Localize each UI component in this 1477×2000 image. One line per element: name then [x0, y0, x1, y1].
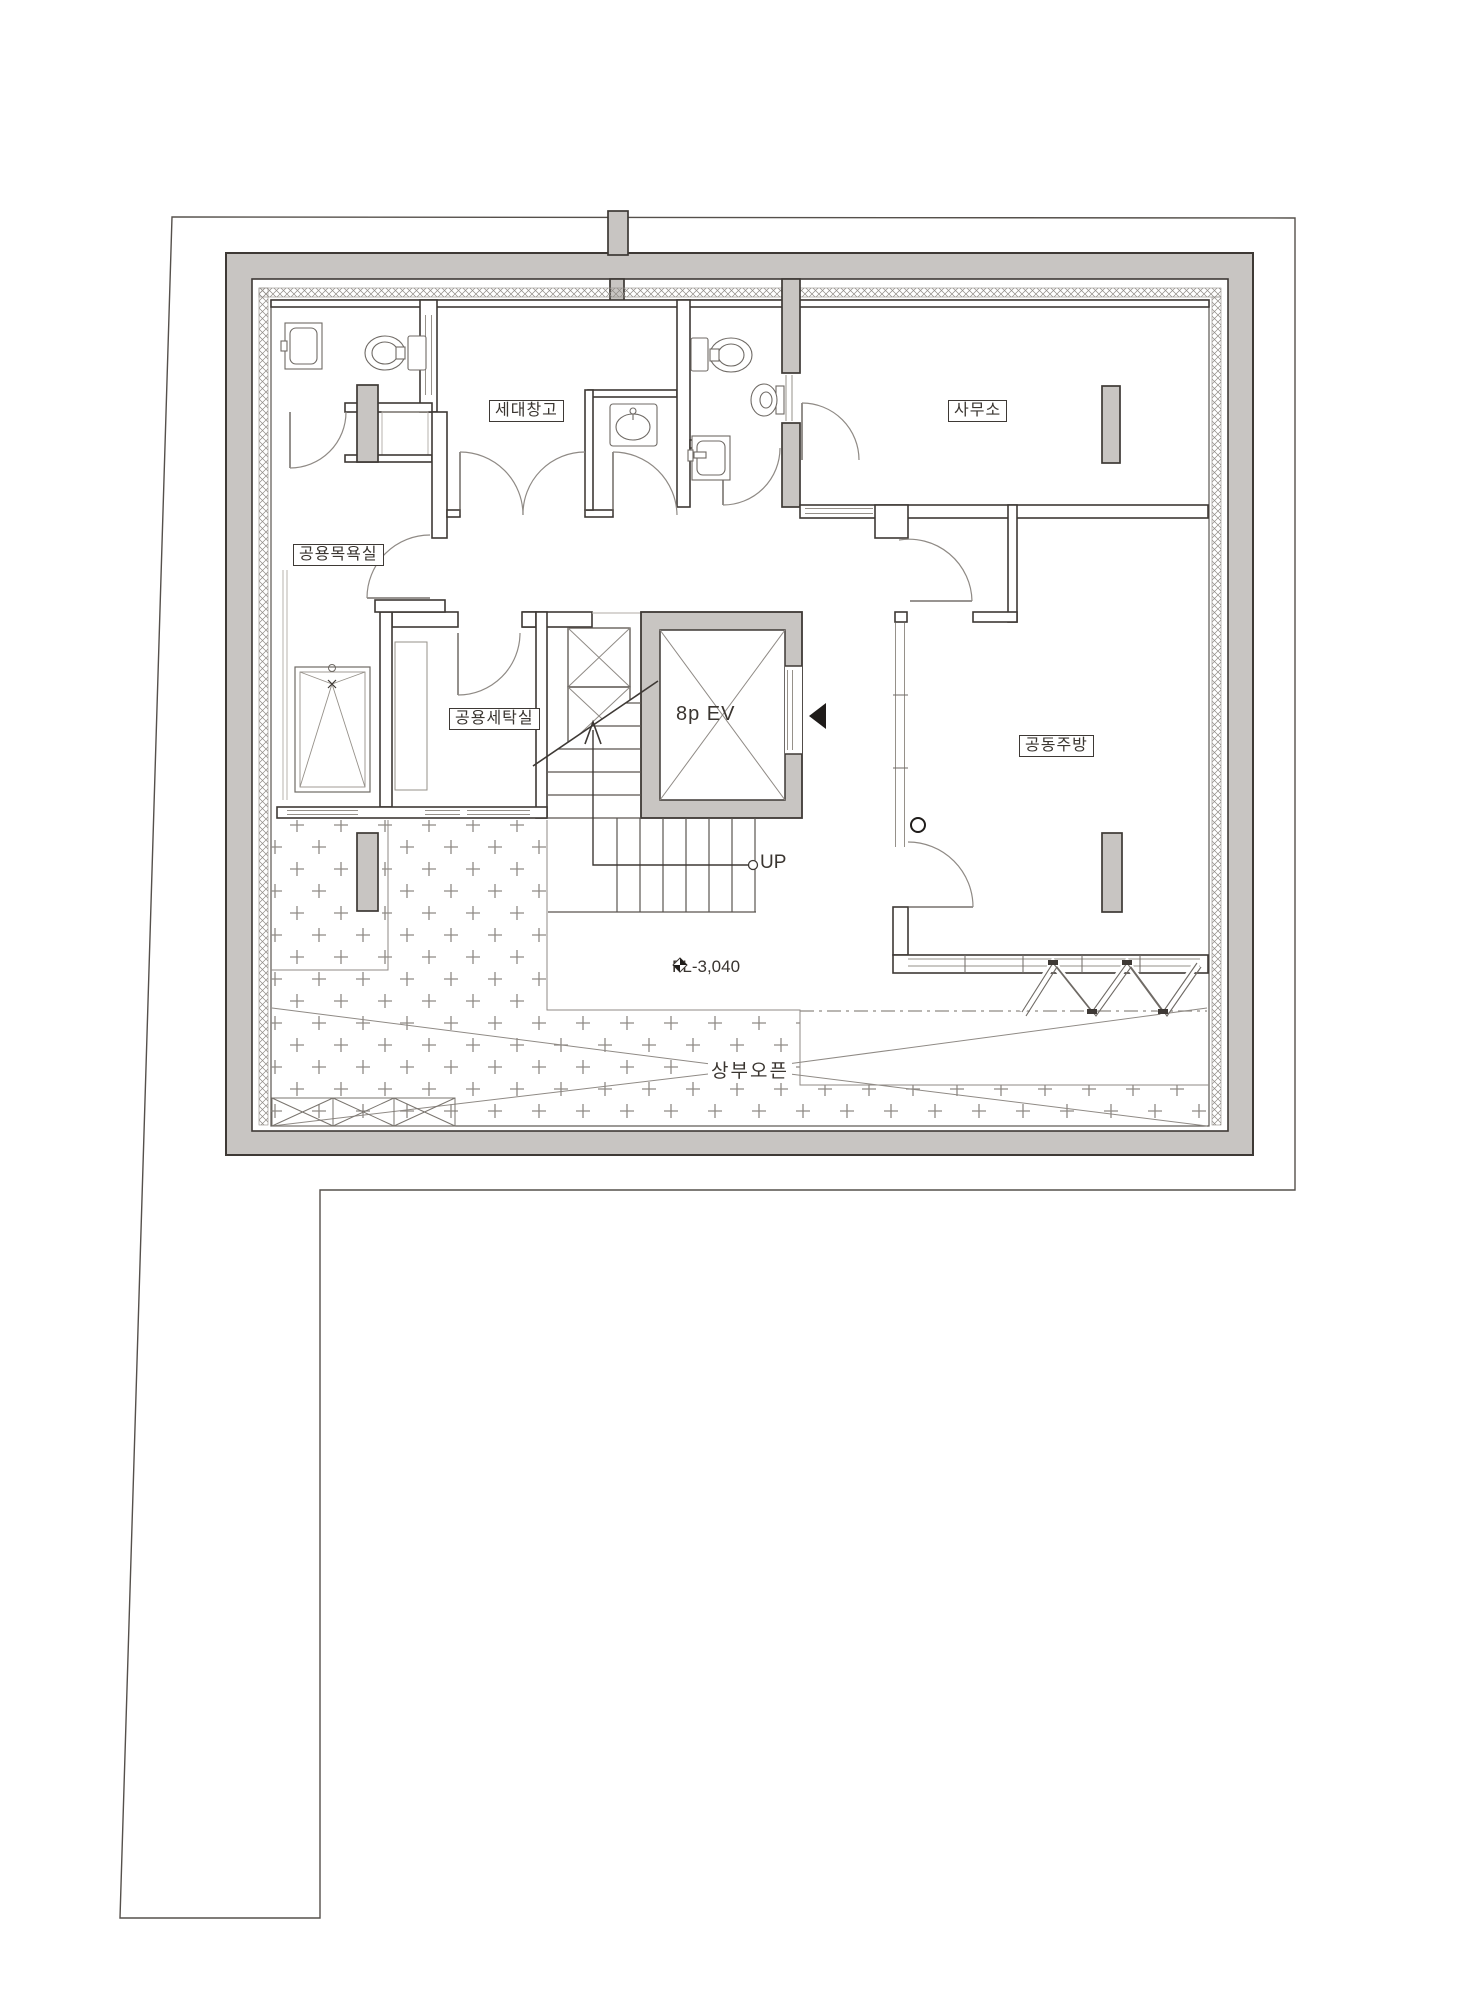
- sink-icon: [688, 436, 730, 480]
- room-label-public-bath: 공용목욕실: [293, 544, 384, 566]
- floor-plan-canvas: 세대창고 사무소 공용목욕실 공용세탁실 공동주방 8p EV UP FL-3,…: [0, 0, 1477, 2000]
- pipe-symbol-icon: [911, 818, 925, 832]
- laundry-counter: [395, 642, 427, 790]
- elevator-direction-icon: [809, 703, 826, 729]
- shower-pan: [295, 665, 370, 793]
- elevator-label: 8p EV: [676, 703, 735, 726]
- sink-icon: [610, 404, 657, 446]
- stair-up-label: UP: [760, 852, 786, 874]
- shower-head-icon: [329, 665, 336, 672]
- floor-level-annotation: FL-3,040: [672, 957, 740, 977]
- stair-break-line: [533, 681, 658, 766]
- floor-plan-drawing: [0, 0, 1477, 2000]
- party-wall-stub: [608, 211, 628, 255]
- toilet-icon: [365, 336, 426, 370]
- room-label-office: 사무소: [948, 400, 1007, 422]
- room-label-public-laundry: 공용세탁실: [449, 708, 540, 730]
- sink-icon: [281, 323, 322, 369]
- toilet-icon: [691, 338, 752, 372]
- urinal-icon: [751, 384, 784, 416]
- level-marker-icon: [672, 957, 688, 973]
- open-above-annotation: 상부오픈: [708, 1056, 792, 1083]
- drain-icon: [328, 680, 336, 688]
- room-label-storage: 세대창고: [489, 400, 564, 422]
- room-label-shared-kitchen: 공동주방: [1019, 735, 1094, 757]
